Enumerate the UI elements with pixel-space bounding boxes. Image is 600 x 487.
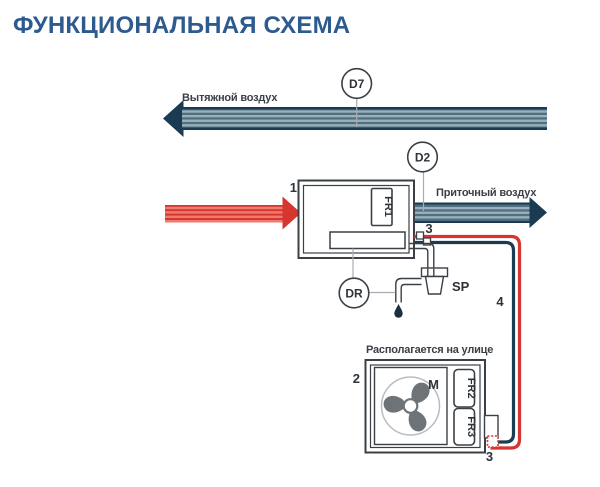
exhaust-arrowhead-icon — [163, 100, 184, 137]
supply-arrowhead-icon — [530, 197, 548, 228]
exhaust-air-label: Вытяжной воздух — [182, 92, 278, 104]
exhaust-air-duct — [163, 100, 547, 137]
sensor-d2-label: D2 — [415, 150, 431, 164]
siphon-funnel-icon — [426, 277, 444, 295]
line-number: 4 — [496, 294, 504, 309]
outdoor-port-marker-icon — [488, 436, 499, 447]
filter-fr2-label: FR2 — [465, 378, 477, 399]
functional-scheme-page: ФУНКЦИОНАЛЬНАЯ СХЕМА Вытяжной воздух D7 — [0, 0, 600, 487]
supply-air-label: Приточный воздух — [436, 187, 537, 199]
exhaust-duct-band — [182, 107, 547, 130]
siphon-rim — [422, 268, 448, 277]
drain-outlet-outer — [396, 279, 422, 303]
supply-air-duct — [414, 197, 547, 228]
line-connection-box — [485, 416, 499, 439]
supply-duct-edge-top — [414, 203, 530, 205]
intake-air-band — [165, 205, 284, 223]
siphon-label: SP — [452, 279, 470, 294]
scheme-canvas: Вытяжной воздух D7 Приточный воздух D2 — [0, 0, 600, 487]
sensor-dr-label: DR — [345, 286, 363, 300]
outdoor-unit-number: 2 — [353, 371, 360, 386]
heat-exchanger-box — [330, 232, 405, 249]
intake-air-arrow — [165, 197, 301, 230]
indoor-port-number: 3 — [425, 221, 432, 236]
outdoor-unit: Располагается на улице 2 M FR2 FR3 3 — [353, 344, 498, 464]
indoor-unit-number: 1 — [290, 180, 297, 195]
fan-motor-label: M — [428, 377, 439, 392]
line-connector-red-icon — [417, 232, 424, 239]
drain-outlet-inner — [401, 285, 421, 303]
supply-duct-band — [414, 203, 530, 224]
water-droplet-icon — [394, 304, 402, 318]
exhaust-duct-edge-top — [182, 107, 547, 109]
sensor-d7-label: D7 — [349, 77, 365, 91]
outdoor-note-label: Располагается на улице — [366, 344, 493, 356]
filter-fr3-label: FR3 — [465, 416, 477, 437]
outdoor-port-number: 3 — [486, 449, 493, 464]
exhaust-duct-edge-bottom — [182, 128, 547, 130]
indoor-unit: FR1 1 — [290, 180, 414, 258]
filter-fr1-label: FR1 — [382, 196, 394, 217]
